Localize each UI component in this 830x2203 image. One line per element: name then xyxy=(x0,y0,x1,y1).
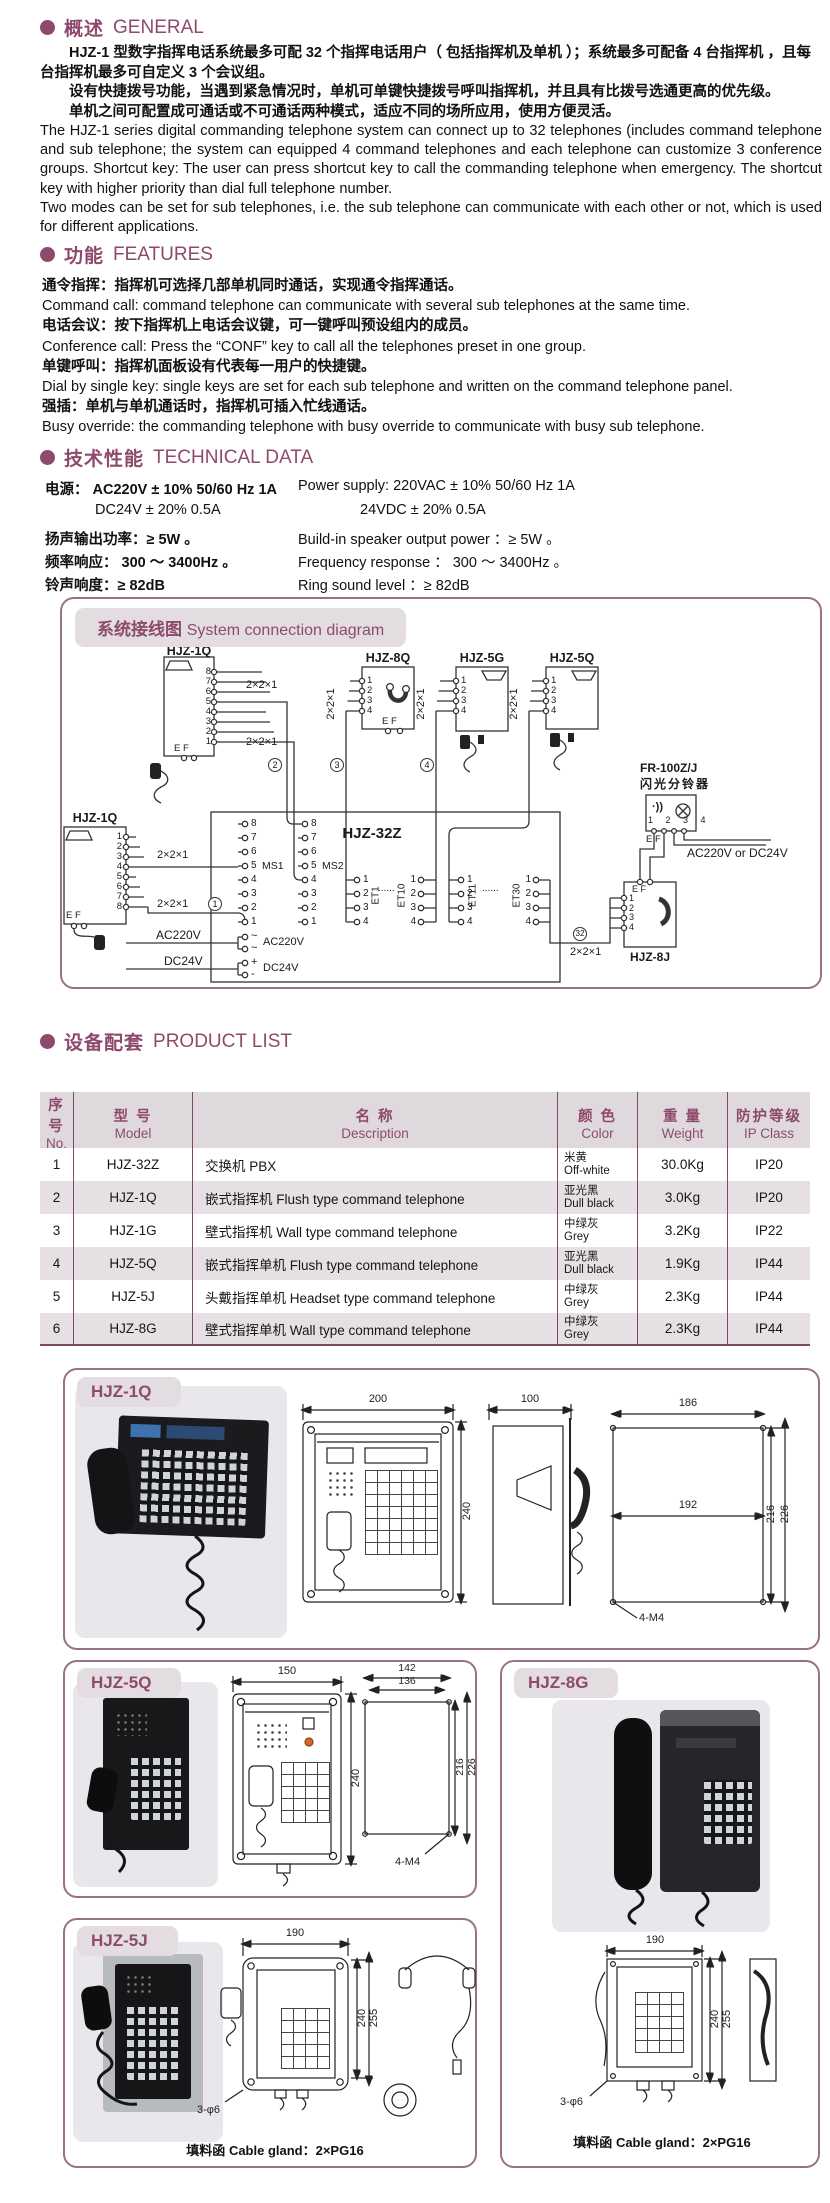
datasheet-page: 概述 GENERAL HJZ-1 型数字指挥电话系统最多可配 32 个指挥电话用… xyxy=(0,0,830,2203)
dim-cut-h1: 216 xyxy=(765,1496,777,1532)
cell-desc: 嵌式指挥机 Flush type command telephone xyxy=(193,1181,558,1214)
system-diagram-box: 系统接线图 System connection diagram xyxy=(60,597,822,989)
device-hjz5g xyxy=(436,667,508,812)
dim-screws: 4-M4 xyxy=(395,1856,420,1868)
pin-numbers: 8 7 6 5 4 3 2 1 xyxy=(311,817,321,929)
speaker-dots xyxy=(255,1722,287,1748)
terminal-label: ET30 xyxy=(512,878,523,914)
feature-cn: 单键呼叫：指挥机面板设有代表每一用户的快捷键。 xyxy=(42,357,822,377)
wire-label: 2×2×1 xyxy=(246,679,277,691)
dim-cut-h1: 216 xyxy=(454,1749,466,1785)
pin-numbers: 1 2 3 4 xyxy=(648,815,711,825)
table-row: 2 HJZ-1Q 嵌式指挥机 Flush type command teleph… xyxy=(40,1181,810,1214)
pin-label-ef: E F xyxy=(632,884,646,894)
section-title-cn: 技术性能 xyxy=(64,444,144,471)
cell-weight: 2.3Kg xyxy=(638,1313,728,1344)
cell-model: HJZ-8G xyxy=(74,1313,193,1344)
wire-label: 2×2×1 xyxy=(570,946,601,958)
col-header: 重 量Weight xyxy=(638,1092,728,1153)
power-label: AC220V xyxy=(263,936,304,948)
cable-gland-note: 填料函 Cable gland：2×PG16 xyxy=(130,2140,420,2159)
product-box-hjz5j: HJZ-5J xyxy=(63,1918,477,2168)
dim-width: 190 xyxy=(637,1934,673,1946)
keypad-drawing xyxy=(635,1992,684,2053)
device-label: FR-100Z/J xyxy=(640,761,697,775)
pin-numbers: 1 2 3 4 xyxy=(629,894,634,933)
wire-number-3: 3 xyxy=(330,758,344,772)
power-label: DC24V xyxy=(263,962,298,974)
cell-no: 2 xyxy=(40,1181,74,1214)
dim-cut-w1: 142 xyxy=(389,1662,425,1674)
ellipsis: ...... xyxy=(482,883,499,894)
col-header: 序号No. xyxy=(40,1092,74,1153)
dim-cut-w2: 136 xyxy=(389,1675,425,1687)
paragraph: 设有快捷拨号功能，当遇到紧急情况时，单机可单键快捷拨号呼叫指挥机，并且具有比拨号… xyxy=(40,83,820,103)
cable-gland-note: 填料函 Cable gland：2×PG16 xyxy=(522,2132,802,2151)
cell-desc: 嵌式指挥单机 Flush type command telephone xyxy=(193,1247,558,1280)
dim-holes: 3-φ6 xyxy=(197,2104,220,2116)
power-label: DC24V xyxy=(164,954,203,968)
device-label: HJZ-5G xyxy=(447,651,517,665)
cell-model: HJZ-5J xyxy=(74,1280,193,1313)
device-label: HJZ-5Q xyxy=(537,651,607,665)
device-hjz5q-top xyxy=(529,667,598,812)
paragraph: 单机之间可配置成可通话或不可通话两种模式，适应不同的场所应用，使用方便灵活。 xyxy=(40,103,820,123)
cell-weight: 1.9Kg xyxy=(638,1247,728,1280)
keypad-drawing xyxy=(365,1470,438,1555)
cell-no: 5 xyxy=(40,1280,74,1313)
cell-weight: 3.0Kg xyxy=(638,1181,728,1214)
bullet-icon xyxy=(40,20,55,35)
tech-line: Power supply: 220VAC ± 10% 50/60 Hz 1A xyxy=(298,478,575,494)
table-row: 1 HJZ-32Z 交换机 PBX 米黄Off-white 30.0Kg IP2… xyxy=(40,1148,810,1181)
feature-cn: 电话会议：按下指挥机上电话会议键，可一键呼叫预设组内的成员。 xyxy=(42,316,822,336)
wire-label: 2×2×1 xyxy=(325,682,337,726)
pin-numbers: 1 2 3 4 5 6 7 8 xyxy=(109,832,122,912)
cell-color: 中绿灰Grey xyxy=(558,1280,638,1313)
dim-depth: 100 xyxy=(512,1393,548,1405)
ac-symbols: ~ ~ xyxy=(251,930,257,954)
technical-left-column: 电源： AC220V ± 10% 50/60 Hz 1A DC24V ± 20%… xyxy=(45,478,295,588)
device-label: HJZ-32Z xyxy=(317,825,427,842)
general-cn-paragraphs: HJZ-1 型数字指挥电话系统最多可配 32 个指挥电话用户（ 包括指挥机及单机… xyxy=(40,44,820,122)
table-row: 4 HJZ-5Q 嵌式指挥单机 Flush type command telep… xyxy=(40,1247,810,1280)
gland-en: Cable gland：2×PG16 xyxy=(229,2143,364,2158)
wire-number-4: 4 xyxy=(420,758,434,772)
cell-desc: 交换机 PBX xyxy=(193,1148,558,1181)
section-title-cn: 功能 xyxy=(64,241,104,268)
cell-model: HJZ-1Q xyxy=(74,1181,193,1214)
power-label: AC220V xyxy=(156,928,201,942)
tech-line: 频率响应： 300 ～ 3400Hz 。 xyxy=(45,551,237,572)
dim-screws: 4-M4 xyxy=(639,1612,664,1624)
speaker-dots xyxy=(327,1470,355,1498)
terminal-label: ET11 xyxy=(468,878,479,914)
wire-label: 2×2×1 xyxy=(246,736,277,748)
device-label: HJZ-1Q xyxy=(60,811,130,825)
technical-right-column: Power supply: 220VAC ± 10% 50/60 Hz 1A 2… xyxy=(298,478,798,588)
col-header: 颜 色Color xyxy=(558,1092,638,1153)
terminal-label: ET10 xyxy=(397,878,408,914)
gland-cn: 填料函 xyxy=(573,2135,612,2150)
col-header: 防护等级IP Class xyxy=(728,1092,810,1153)
tech-line: DC24V ± 20% 0.5A xyxy=(95,502,221,518)
features-list: 通令指挥：指挥机可选择几部单机同时通话，实现通令指挥通话。 Command ca… xyxy=(42,276,822,438)
cell-desc: 壁式指挥机 Wall type command telephone xyxy=(193,1214,558,1247)
table-row: 6 HJZ-8G 壁式指挥单机 Wall type command teleph… xyxy=(40,1313,810,1346)
table-header-row: 序号No. 型 号Model 名 称Description 颜 色Color 重… xyxy=(40,1092,810,1148)
wire-label: 2×2×1 xyxy=(415,682,427,726)
dim-cut-h2: 226 xyxy=(779,1496,791,1532)
col-header: 名 称Description xyxy=(193,1092,558,1153)
keypad-drawing xyxy=(281,1762,330,1823)
dim-width: 200 xyxy=(360,1393,396,1405)
diagram-title-en: System connection diagram xyxy=(187,622,384,639)
cell-no: 3 xyxy=(40,1214,74,1247)
cell-weight: 3.2Kg xyxy=(638,1214,728,1247)
section-general-header: 概述 GENERAL xyxy=(40,14,204,41)
product-title-chip: HJZ-1Q xyxy=(77,1377,181,1407)
power-label: AC220V or DC24V xyxy=(687,846,788,861)
pin-numbers: 8 7 6 5 4 3 2 1 xyxy=(251,817,261,929)
pin-label-ef: E F xyxy=(646,834,661,845)
col-header: 型 号Model xyxy=(74,1092,193,1153)
cell-weight: 30.0Kg xyxy=(638,1148,728,1181)
section-product-list-header: 设备配套 PRODUCT LIST xyxy=(40,1028,292,1055)
dim-height: 240 xyxy=(350,1760,362,1796)
tech-line: 24VDC ± 20% 0.5A xyxy=(360,502,486,518)
dim-h2: 255 xyxy=(721,2001,733,2037)
feature-en: Conference call: Press the “CONF” key to… xyxy=(42,337,822,357)
cell-model: HJZ-1G xyxy=(74,1214,193,1247)
bullet-icon xyxy=(40,450,55,465)
ellipsis: ...... xyxy=(378,883,395,894)
cell-desc: 壁式指挥单机 Wall type command telephone xyxy=(193,1313,558,1344)
wiring-diagram: HJZ-1Q HJZ-8Q HJZ-5G HJZ-5Q HJZ-1Q HJZ-3… xyxy=(62,645,819,991)
cell-color: 亚光黑Dull black xyxy=(558,1181,638,1214)
pin-numbers: 1 2 3 4 xyxy=(551,676,556,716)
cell-no: 6 xyxy=(40,1313,74,1344)
hjz8g-drawing xyxy=(502,1662,822,2170)
product-box-hjz8g: HJZ-8G xyxy=(500,1660,820,2168)
gland-cn: 填料函 xyxy=(186,2143,225,2158)
feature-en: Command call: command telephone can comm… xyxy=(42,296,822,316)
tech-line: 铃声响度：≥ 82dB xyxy=(45,574,165,595)
hjz1q-drawings xyxy=(65,1370,822,1652)
tech-line: Ring sound level ：≥ 82dB xyxy=(298,574,470,595)
pin-numbers: 1 2 3 4 xyxy=(521,873,531,929)
section-title-cn: 概述 xyxy=(64,14,104,41)
dim-width: 150 xyxy=(269,1665,305,1677)
cell-desc: 头戴指挥单机 Headset type command telephone xyxy=(193,1280,558,1313)
feature-cn: 强插：单机与单机通话时，指挥机可插入忙线通话。 xyxy=(42,397,822,417)
dim-cut-mid: 192 xyxy=(665,1499,711,1511)
device-hjz8q xyxy=(346,667,414,812)
cell-no: 4 xyxy=(40,1247,74,1280)
dim-cut-h2: 226 xyxy=(466,1749,478,1785)
cell-ip: IP44 xyxy=(728,1247,810,1280)
wire-number-2: 2 xyxy=(268,758,282,772)
tech-line: 扬声输出功率：≥ 5W 。 xyxy=(45,528,199,549)
section-title-en: PRODUCT LIST xyxy=(153,1031,292,1053)
pin-label-ef: E F xyxy=(66,910,81,921)
section-title-en: GENERAL xyxy=(113,17,204,39)
diagram-title-cn: 系统接线图 xyxy=(97,620,182,639)
cell-no: 1 xyxy=(40,1148,74,1181)
keypad-drawing xyxy=(281,2008,330,2069)
cell-color: 亚光黑Dull black xyxy=(558,1247,638,1280)
cell-ip: IP44 xyxy=(728,1313,810,1344)
sounder-icon: ·)) xyxy=(652,801,663,813)
pin-numbers: 8 7 6 5 4 3 2 1 xyxy=(198,667,211,747)
terminal-label: MS1 xyxy=(262,860,284,872)
cell-ip: IP22 xyxy=(728,1214,810,1247)
section-features-header: 功能 FEATURES xyxy=(40,241,213,268)
hjz5j-drawings xyxy=(65,1920,479,2170)
dim-cut-width: 186 xyxy=(665,1397,711,1409)
cell-color: 中绿灰Grey xyxy=(558,1214,638,1247)
cell-model: HJZ-32Z xyxy=(74,1148,193,1181)
device-label: HJZ-8J xyxy=(618,950,682,964)
cell-color: 中绿灰Grey xyxy=(558,1313,638,1344)
tech-line: Build-in speaker output power ：≥ 5W 。 xyxy=(298,528,561,549)
product-title-chip: HJZ-8G xyxy=(514,1668,618,1698)
diagram-title-chip: 系统接线图 System connection diagram xyxy=(75,608,406,647)
tech-line: Frequency response ： 300 ～ 3400Hz 。 xyxy=(298,551,568,572)
pin-numbers: 1 2 3 4 xyxy=(367,676,372,716)
feature-en: Busy override: the commanding telephone … xyxy=(42,417,822,437)
product-box-hjz1q: HJZ-1Q xyxy=(63,1368,820,1650)
general-en-paragraph: The HJZ-1 series digital commanding tele… xyxy=(40,122,822,237)
feature-cn: 通令指挥：指挥机可选择几部单机同时通话，实现通令指挥通话。 xyxy=(42,276,822,296)
cell-ip: IP20 xyxy=(728,1181,810,1214)
section-technical-header: 技术性能 TECHNICAL DATA xyxy=(40,444,313,471)
cell-weight: 2.3Kg xyxy=(638,1280,728,1313)
device-label-cn: 闪光分铃器 xyxy=(640,775,710,792)
dim-width: 190 xyxy=(277,1927,313,1939)
pin-label-ef: E F xyxy=(174,743,189,754)
dim-h1: 240 xyxy=(709,2001,721,2037)
section-title-en: FEATURES xyxy=(113,244,213,266)
table-row: 5 HJZ-5J 头戴指挥单机 Headset type command tel… xyxy=(40,1280,810,1313)
section-title-cn: 设备配套 xyxy=(64,1028,144,1055)
product-title-chip: HJZ-5Q xyxy=(77,1668,181,1698)
bullet-icon xyxy=(40,247,55,262)
table-row: 3 HJZ-1G 壁式指挥机 Wall type command telepho… xyxy=(40,1214,810,1247)
device-label: HJZ-8Q xyxy=(353,651,423,665)
product-box-hjz5q: HJZ-5Q xyxy=(63,1660,477,1898)
dim-height: 240 xyxy=(461,1493,473,1529)
product-table: 序号No. 型 号Model 名 称Description 颜 色Color 重… xyxy=(40,1092,810,1346)
gland-en: Cable gland：2×PG16 xyxy=(616,2135,751,2150)
tech-line: 电源： AC220V ± 10% 50/60 Hz 1A xyxy=(45,478,277,499)
pin-numbers: 1 2 3 4 xyxy=(461,676,466,716)
wire-label: 2×2×1 xyxy=(157,849,188,861)
wire-number-1: 1 xyxy=(208,897,222,911)
wire-label: 2×2×1 xyxy=(157,898,188,910)
product-title-chip: HJZ-5J xyxy=(77,1926,178,1956)
cell-model: HJZ-5Q xyxy=(74,1247,193,1280)
section-title-en: TECHNICAL DATA xyxy=(153,447,313,469)
dim-h2: 255 xyxy=(368,2000,380,2036)
pin-label-ef: E F xyxy=(382,716,397,727)
paragraph: HJZ-1 型数字指挥电话系统最多可配 32 个指挥电话用户（ 包括指挥机及单机… xyxy=(40,44,820,83)
bullet-icon xyxy=(40,1034,55,1049)
feature-en: Dial by single key: single keys are set … xyxy=(42,377,822,397)
dim-holes: 3-φ6 xyxy=(560,2096,583,2108)
dc-symbols: + - xyxy=(251,956,257,980)
cell-ip: IP44 xyxy=(728,1280,810,1313)
wire-label: 2×2×1 xyxy=(508,682,520,726)
device-hjz1q-left xyxy=(64,827,245,950)
wire-number-32: 32 xyxy=(573,927,587,941)
cell-color: 米黄Off-white xyxy=(558,1148,638,1181)
terminal-label: MS2 xyxy=(322,860,344,872)
cell-ip: IP20 xyxy=(728,1148,810,1181)
pin-numbers: 1 2 3 4 xyxy=(406,873,416,929)
dim-h1: 240 xyxy=(356,2000,368,2036)
